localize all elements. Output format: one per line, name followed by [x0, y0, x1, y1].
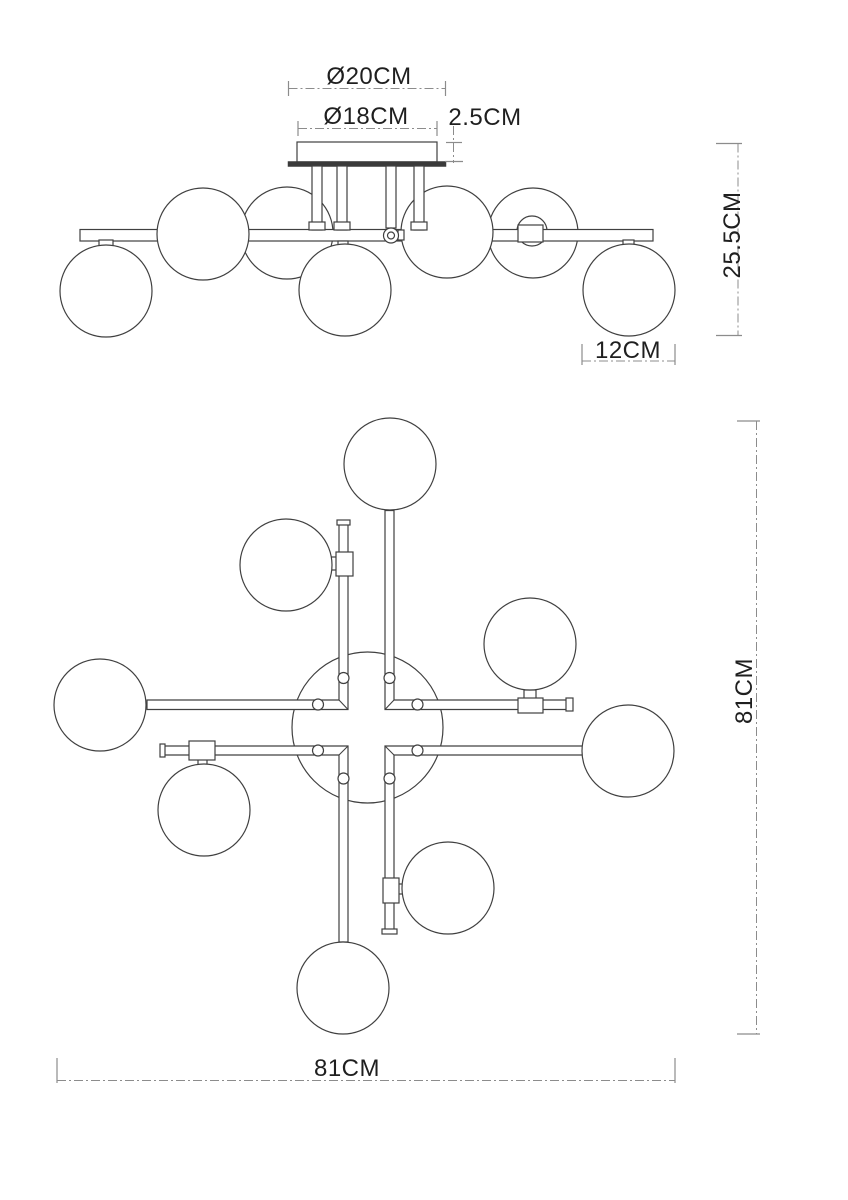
rod-collar — [309, 222, 325, 230]
screw-mark — [384, 773, 395, 784]
screw-mark — [338, 673, 349, 684]
side-elevation-view: Ø20CM Ø18CM 2.5CM 25.5CM 12C — [60, 63, 746, 365]
ceiling-canopy — [297, 142, 437, 162]
glass-globe — [240, 519, 332, 611]
glass-globe — [344, 418, 436, 510]
dim-canopy-outer: Ø20CM — [289, 63, 446, 96]
dim-overall-depth: 81CM — [731, 421, 760, 1034]
glass-globe — [402, 842, 494, 934]
swivel-ring-inner — [388, 232, 395, 239]
dim-label-globe-diameter: 12CM — [595, 337, 661, 364]
dim-canopy-inner: Ø18CM — [298, 103, 437, 136]
drop-rod — [337, 166, 347, 230]
glass-globe — [582, 705, 674, 797]
socket-fitting — [336, 552, 353, 576]
glass-globe — [157, 188, 249, 280]
technical-drawing: Ø20CM Ø18CM 2.5CM 25.5CM 12C — [0, 0, 848, 1200]
screw-mark — [412, 699, 423, 710]
dim-label-overall-depth: 81CM — [731, 658, 758, 724]
dim-label-overall-width: 81CM — [314, 1055, 380, 1082]
arm-end-cap — [566, 698, 573, 711]
dim-label-canopy-height: 2.5CM — [448, 104, 521, 131]
dim-label-overall-drop: 25.5CM — [719, 191, 746, 278]
socket-fitting — [383, 878, 399, 903]
drawing-page: Ø20CM Ø18CM 2.5CM 25.5CM 12C — [0, 0, 848, 1200]
glass-globe — [583, 244, 675, 336]
arm-end-cap — [382, 929, 397, 934]
drop-rod — [312, 166, 322, 230]
arm-end-cap — [337, 520, 350, 525]
rod-collar — [334, 222, 350, 230]
socket-fitting — [518, 698, 543, 713]
glass-globe — [158, 764, 250, 856]
glass-globe — [297, 942, 389, 1034]
rod-collar — [411, 222, 427, 230]
dim-label-canopy-outer: Ø20CM — [326, 63, 411, 90]
dim-label-canopy-inner: Ø18CM — [323, 103, 408, 130]
dim-overall-drop: 25.5CM — [716, 144, 746, 336]
screw-mark — [412, 745, 423, 756]
screw-mark — [313, 699, 324, 710]
arm-end-cap — [160, 744, 165, 757]
drop-rod — [414, 166, 424, 230]
dim-overall-width: 81CM — [57, 1055, 675, 1083]
screw-mark — [338, 773, 349, 784]
screw-mark — [384, 673, 395, 684]
glass-globe — [60, 245, 152, 337]
dim-globe-diameter: 12CM — [582, 337, 675, 365]
glass-globe — [54, 659, 146, 751]
glass-globe — [299, 244, 391, 336]
dim-canopy-height: 2.5CM — [445, 104, 522, 163]
glass-globe — [484, 598, 576, 690]
canopy-circle — [292, 652, 443, 803]
plan-view: 81CM 81CM — [54, 418, 760, 1083]
screw-mark — [313, 745, 324, 756]
drop-rod — [386, 166, 396, 228]
globe-socket-block — [518, 225, 543, 242]
socket-fitting — [189, 741, 215, 760]
